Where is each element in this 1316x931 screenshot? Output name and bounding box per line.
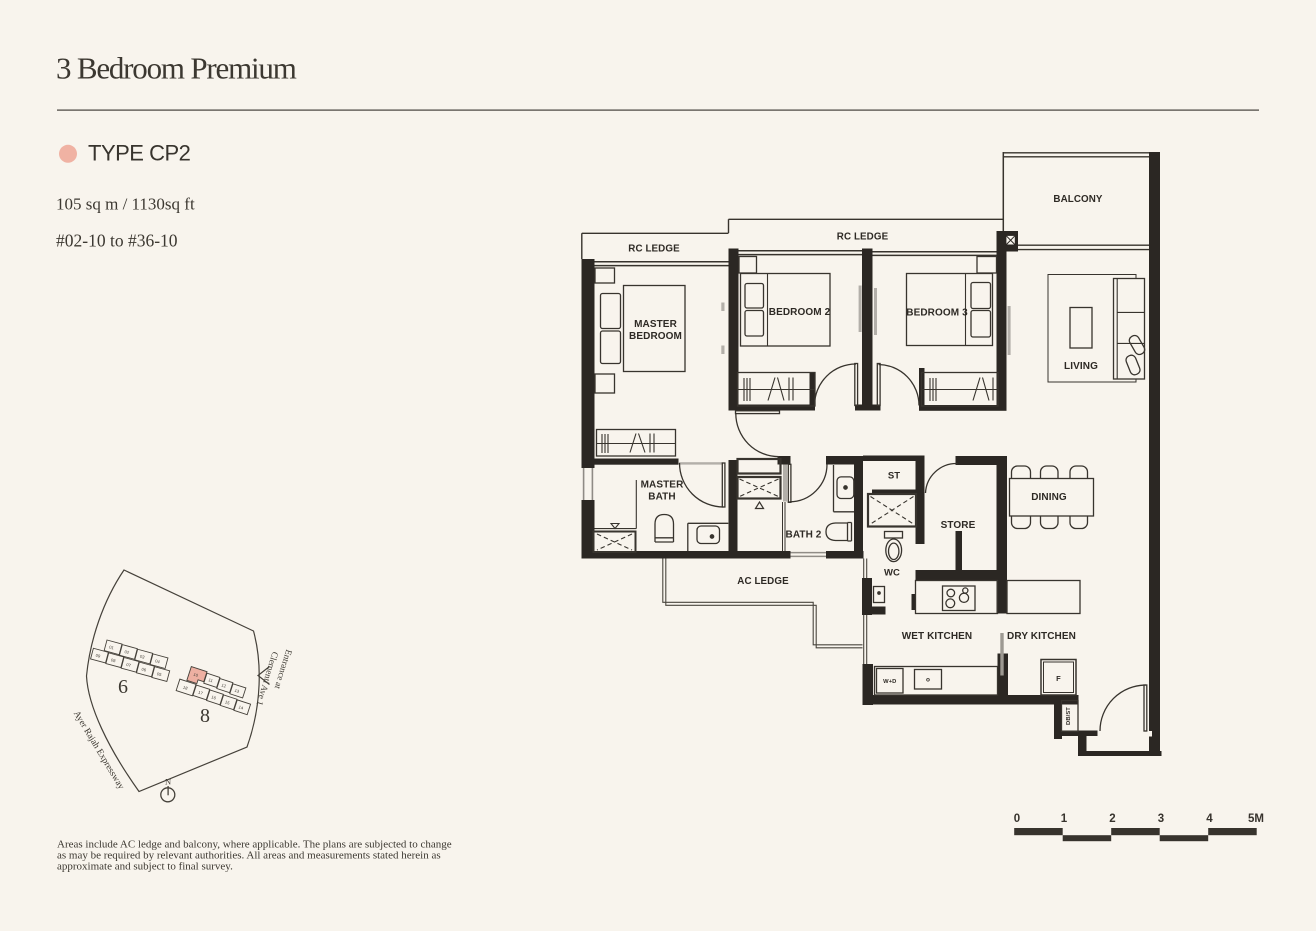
svg-text:DB/ST: DB/ST (1066, 707, 1072, 725)
svg-text:3 Bedroom Premium: 3 Bedroom Premium (56, 51, 297, 86)
svg-text:105 sq m / 1130sq ft: 105 sq m / 1130sq ft (56, 195, 195, 214)
svg-text:BEDROOM 2: BEDROOM 2 (769, 307, 831, 318)
svg-text:WC: WC (884, 568, 900, 579)
svg-text:TYPE CP2: TYPE CP2 (88, 141, 191, 166)
svg-text:ST: ST (888, 471, 900, 482)
svg-text:2: 2 (1109, 813, 1115, 825)
svg-text:#02-10 to #36-10: #02-10 to #36-10 (56, 231, 178, 251)
svg-text:approximate and subject to fin: approximate and subject to final survey. (57, 861, 233, 873)
svg-text:MASTER: MASTER (634, 319, 677, 330)
svg-text:4: 4 (1206, 813, 1213, 825)
svg-text:N: N (165, 777, 171, 787)
svg-text:3: 3 (1158, 813, 1164, 825)
svg-text:BEDROOM: BEDROOM (629, 331, 682, 342)
svg-text:LIVING: LIVING (1064, 361, 1098, 372)
svg-text:0: 0 (1014, 813, 1020, 825)
svg-text:MASTER: MASTER (641, 480, 684, 491)
svg-text:WET KITCHEN: WET KITCHEN (902, 631, 973, 642)
svg-text:5M: 5M (1248, 813, 1264, 825)
svg-text:DRY KITCHEN: DRY KITCHEN (1007, 631, 1076, 642)
svg-text:STORE: STORE (941, 520, 976, 531)
svg-text:RC LEDGE: RC LEDGE (628, 244, 680, 255)
svg-text:AC LEDGE: AC LEDGE (737, 576, 789, 587)
svg-text:6: 6 (118, 676, 128, 698)
svg-text:8: 8 (200, 705, 210, 727)
svg-text:o: o (926, 677, 930, 684)
svg-text:BATH: BATH (648, 492, 675, 503)
svg-text:BALCONY: BALCONY (1053, 194, 1103, 205)
svg-text:BEDROOM 3: BEDROOM 3 (906, 308, 968, 319)
svg-text:BATH 2: BATH 2 (786, 530, 822, 541)
svg-text:RC LEDGE: RC LEDGE (837, 232, 889, 243)
svg-text:W+D: W+D (883, 679, 896, 685)
svg-text:F: F (1056, 674, 1061, 683)
svg-text:DINING: DINING (1031, 492, 1067, 503)
svg-text:1: 1 (1061, 813, 1068, 825)
